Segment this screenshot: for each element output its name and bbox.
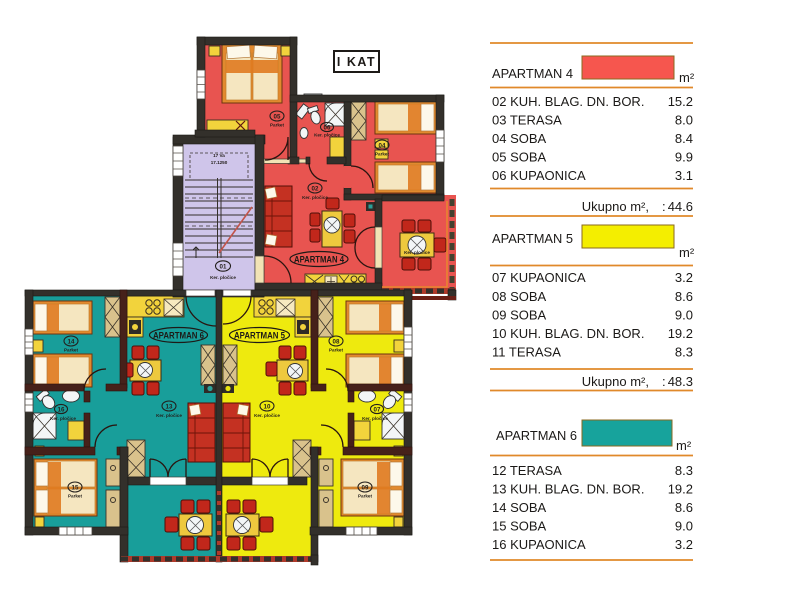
svg-text:Ker. pločice: Ker. pločice [210,275,236,280]
svg-text:Parket: Parket [68,494,83,499]
svg-text:Parket: Parket [329,348,344,353]
svg-text:15 SOBA: 15 SOBA [492,519,547,534]
svg-text:8.3: 8.3 [675,345,693,360]
svg-text:10 KUH. BLAG. DN. BOR.: 10 KUH. BLAG. DN. BOR. [492,326,644,341]
svg-text:08: 08 [333,339,340,346]
svg-text::: : [662,374,666,389]
svg-text:05: 05 [274,114,281,121]
svg-text:04: 04 [379,143,386,150]
svg-text:Ker. pločice: Ker. pločice [302,195,328,200]
svg-text:3.2: 3.2 [675,270,693,285]
svg-text:Parket: Parket [358,494,373,499]
svg-text:APARTMAN 4: APARTMAN 4 [492,66,573,81]
svg-text:13: 13 [166,404,173,411]
svg-text:09: 09 [362,485,369,492]
svg-text:Ker. pločice: Ker. pločice [50,416,76,421]
svg-text:17.1250: 17.1250 [211,160,228,165]
svg-text:06 KUPAONICA: 06 KUPAONICA [492,168,586,183]
svg-text:06: 06 [324,125,331,132]
svg-text:3.2: 3.2 [675,537,693,552]
svg-text:8.0: 8.0 [675,113,693,128]
svg-text:8.6: 8.6 [675,500,693,515]
svg-text:07 KUPAONICA: 07 KUPAONICA [492,270,586,285]
svg-text:15.2: 15.2 [668,94,693,109]
svg-text:08 SOBA: 08 SOBA [492,289,547,304]
svg-text:07: 07 [374,407,381,414]
svg-text:Ker. pločice: Ker. pločice [314,133,340,138]
svg-text:Ukupno m²,: Ukupno m², [582,199,649,214]
svg-text:19.2: 19.2 [668,326,693,341]
svg-text:14 SOBA: 14 SOBA [492,500,547,515]
svg-text:9.0: 9.0 [675,519,693,534]
svg-text:APARTMAN 6: APARTMAN 6 [153,331,204,341]
svg-text:05 SOBA: 05 SOBA [492,150,547,165]
svg-text:15: 15 [72,485,79,492]
svg-text:m²: m² [679,70,695,85]
svg-text:14: 14 [68,339,75,346]
svg-text:9.0: 9.0 [675,308,693,323]
svg-text:02: 02 [312,186,319,193]
svg-text:02 KUH. BLAG. DN. BOR.: 02 KUH. BLAG. DN. BOR. [492,94,644,109]
svg-text:Parket: Parket [270,123,285,128]
svg-text:m²: m² [676,438,692,453]
svg-text:10: 10 [264,404,271,411]
svg-text:Ker. pločice: Ker. pločice [254,413,280,418]
svg-text:Ker. pločice: Ker. pločice [362,416,388,421]
svg-text:19.2: 19.2 [668,482,693,497]
svg-text:APARTMAN 4: APARTMAN 4 [294,255,344,265]
svg-text:8.6: 8.6 [675,289,693,304]
svg-text:APARTMAN 5: APARTMAN 5 [492,231,573,246]
svg-text:APARTMAN 6: APARTMAN 6 [496,428,577,443]
svg-text:Ker. pločice: Ker. pločice [404,250,430,255]
svg-text:Ukupno m²,: Ukupno m², [582,374,649,389]
svg-text:13 KUH. BLAG. DN. BOR.: 13 KUH. BLAG. DN. BOR. [492,482,644,497]
svg-text:48.3: 48.3 [668,374,693,389]
svg-text:3.1: 3.1 [675,168,693,183]
svg-text:03 TERASA: 03 TERASA [492,113,562,128]
svg-text:16: 16 [58,407,65,414]
svg-text:44.6: 44.6 [668,199,693,214]
svg-text:Parket: Parket [375,152,390,157]
svg-text:Ker. pločice: Ker. pločice [156,413,182,418]
svg-text:17 Va: 17 Va [213,153,225,158]
svg-text:m²: m² [679,245,695,260]
svg-text:Parket: Parket [64,348,79,353]
svg-text::: : [662,199,666,214]
svg-text:09 SOBA: 09 SOBA [492,308,547,323]
svg-text:12 TERASA: 12 TERASA [492,463,562,478]
svg-text:01: 01 [220,264,227,271]
svg-text:8.3: 8.3 [675,463,693,478]
svg-text:8.4: 8.4 [675,131,693,146]
svg-text:I KAT: I KAT [337,55,376,69]
svg-text:9.9: 9.9 [675,150,693,165]
svg-text:16 KUPAONICA: 16 KUPAONICA [492,537,586,552]
svg-text:11 TERASA: 11 TERASA [492,345,561,360]
svg-text:04 SOBA: 04 SOBA [492,131,547,146]
svg-text:APARTMAN 5: APARTMAN 5 [234,331,285,341]
